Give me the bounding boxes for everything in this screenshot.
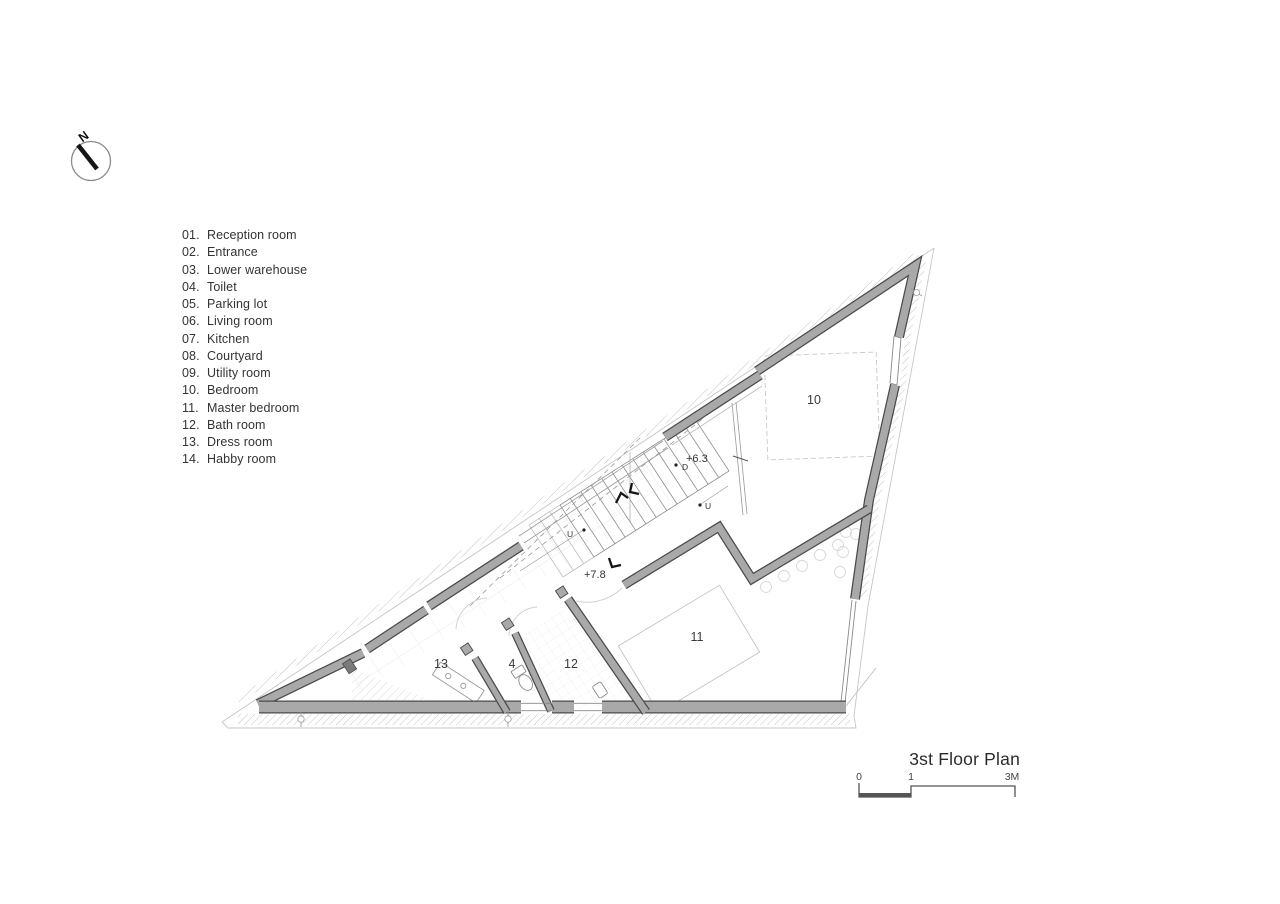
legend-item: 04.Toilet xyxy=(182,279,307,296)
level-marker: +6.3 xyxy=(686,453,708,465)
legend-item-label: Utility room xyxy=(204,366,271,380)
legend-item: 14.Habby room xyxy=(182,451,307,468)
legend-item-label: Dress room xyxy=(204,435,273,449)
legend-item-label: Courtyard xyxy=(204,349,263,363)
bed-outline-master xyxy=(618,585,759,713)
scale-label-3m: 3M xyxy=(1005,771,1020,783)
plan-title: 3st Floor Plan xyxy=(820,749,1020,770)
legend-item: 09.Utility room xyxy=(182,365,307,382)
stair-direction-marker: U xyxy=(705,501,711,511)
legend-item-label: Reception room xyxy=(204,228,297,242)
legend-item: 12.Bath room xyxy=(182,417,307,434)
legend-item-number: 07. xyxy=(182,331,204,348)
legend-item-number: 03. xyxy=(182,262,204,279)
stair-node-dot xyxy=(698,503,701,506)
stair-direction-marker: U xyxy=(567,529,573,539)
legend-item-label: Master bedroom xyxy=(204,401,299,415)
legend-item-number: 04. xyxy=(182,279,204,296)
legend-item-label: Living room xyxy=(204,314,273,328)
legend-item: 05.Parking lot xyxy=(182,296,307,313)
north-needle xyxy=(78,145,97,169)
legend-item: 06.Living room xyxy=(182,313,307,330)
legend-item-number: 09. xyxy=(182,365,204,382)
door-jamb xyxy=(460,643,472,655)
legend-item: 03.Lower warehouse xyxy=(182,262,307,279)
bed-outline-bedroom xyxy=(764,352,880,460)
stair-node-dot xyxy=(674,463,677,466)
legend-item-label: Lower warehouse xyxy=(204,263,307,277)
room-label-bath-room: 12 xyxy=(564,657,578,671)
floor-plan-sheet: D U U +6.3 +7.8 10 11 12 4 13 N 0 1 xyxy=(0,0,1280,904)
legend-item-label: Habby room xyxy=(204,452,276,466)
level-marker: +7.8 xyxy=(584,569,606,581)
legend-item: 10.Bedroom xyxy=(182,382,307,399)
legend-item-number: 06. xyxy=(182,313,204,330)
legend-item-number: 10. xyxy=(182,382,204,399)
room-label-toilet: 4 xyxy=(509,657,516,671)
door-jamb xyxy=(501,618,513,630)
legend-item: 01.Reception room xyxy=(182,227,307,244)
legend-item-number: 08. xyxy=(182,348,204,365)
legend-item-number: 02. xyxy=(182,244,204,261)
legend-item-label: Entrance xyxy=(204,245,258,259)
legend-item: 13.Dress room xyxy=(182,434,307,451)
legend-item-label: Bedroom xyxy=(204,383,258,397)
scale-bar: 0 1 3M xyxy=(856,771,1019,797)
legend-item: 02.Entrance xyxy=(182,244,307,261)
stair-node-dot xyxy=(582,528,585,531)
room-label-bedroom: 10 xyxy=(807,393,821,407)
scale-label-0: 0 xyxy=(856,771,862,783)
north-indicator: N xyxy=(72,128,111,180)
legend-item-number: 14. xyxy=(182,451,204,468)
room-legend: 01.Reception room 02.Entrance 03.Lower w… xyxy=(182,227,307,469)
legend-item-number: 05. xyxy=(182,296,204,313)
room-label-master-bedroom: 11 xyxy=(691,630,704,644)
legend-item: 11.Master bedroom xyxy=(182,400,307,417)
legend-item: 07.Kitchen xyxy=(182,331,307,348)
legend-item-number: 11. xyxy=(182,400,204,417)
scale-label-1: 1 xyxy=(908,771,914,783)
legend-item-label: Parking lot xyxy=(204,297,267,311)
legend-item-number: 12. xyxy=(182,417,204,434)
legend-item-number: 01. xyxy=(182,227,204,244)
door-jamb xyxy=(555,586,567,598)
legend-item-label: Kitchen xyxy=(204,332,249,346)
legend-item-label: Toilet xyxy=(204,280,237,294)
legend-item: 08.Courtyard xyxy=(182,348,307,365)
legend-item-number: 13. xyxy=(182,434,204,451)
room-label-dress-room: 13 xyxy=(434,657,448,671)
north-letter: N xyxy=(76,128,92,145)
legend-item-label: Bath room xyxy=(204,418,266,432)
